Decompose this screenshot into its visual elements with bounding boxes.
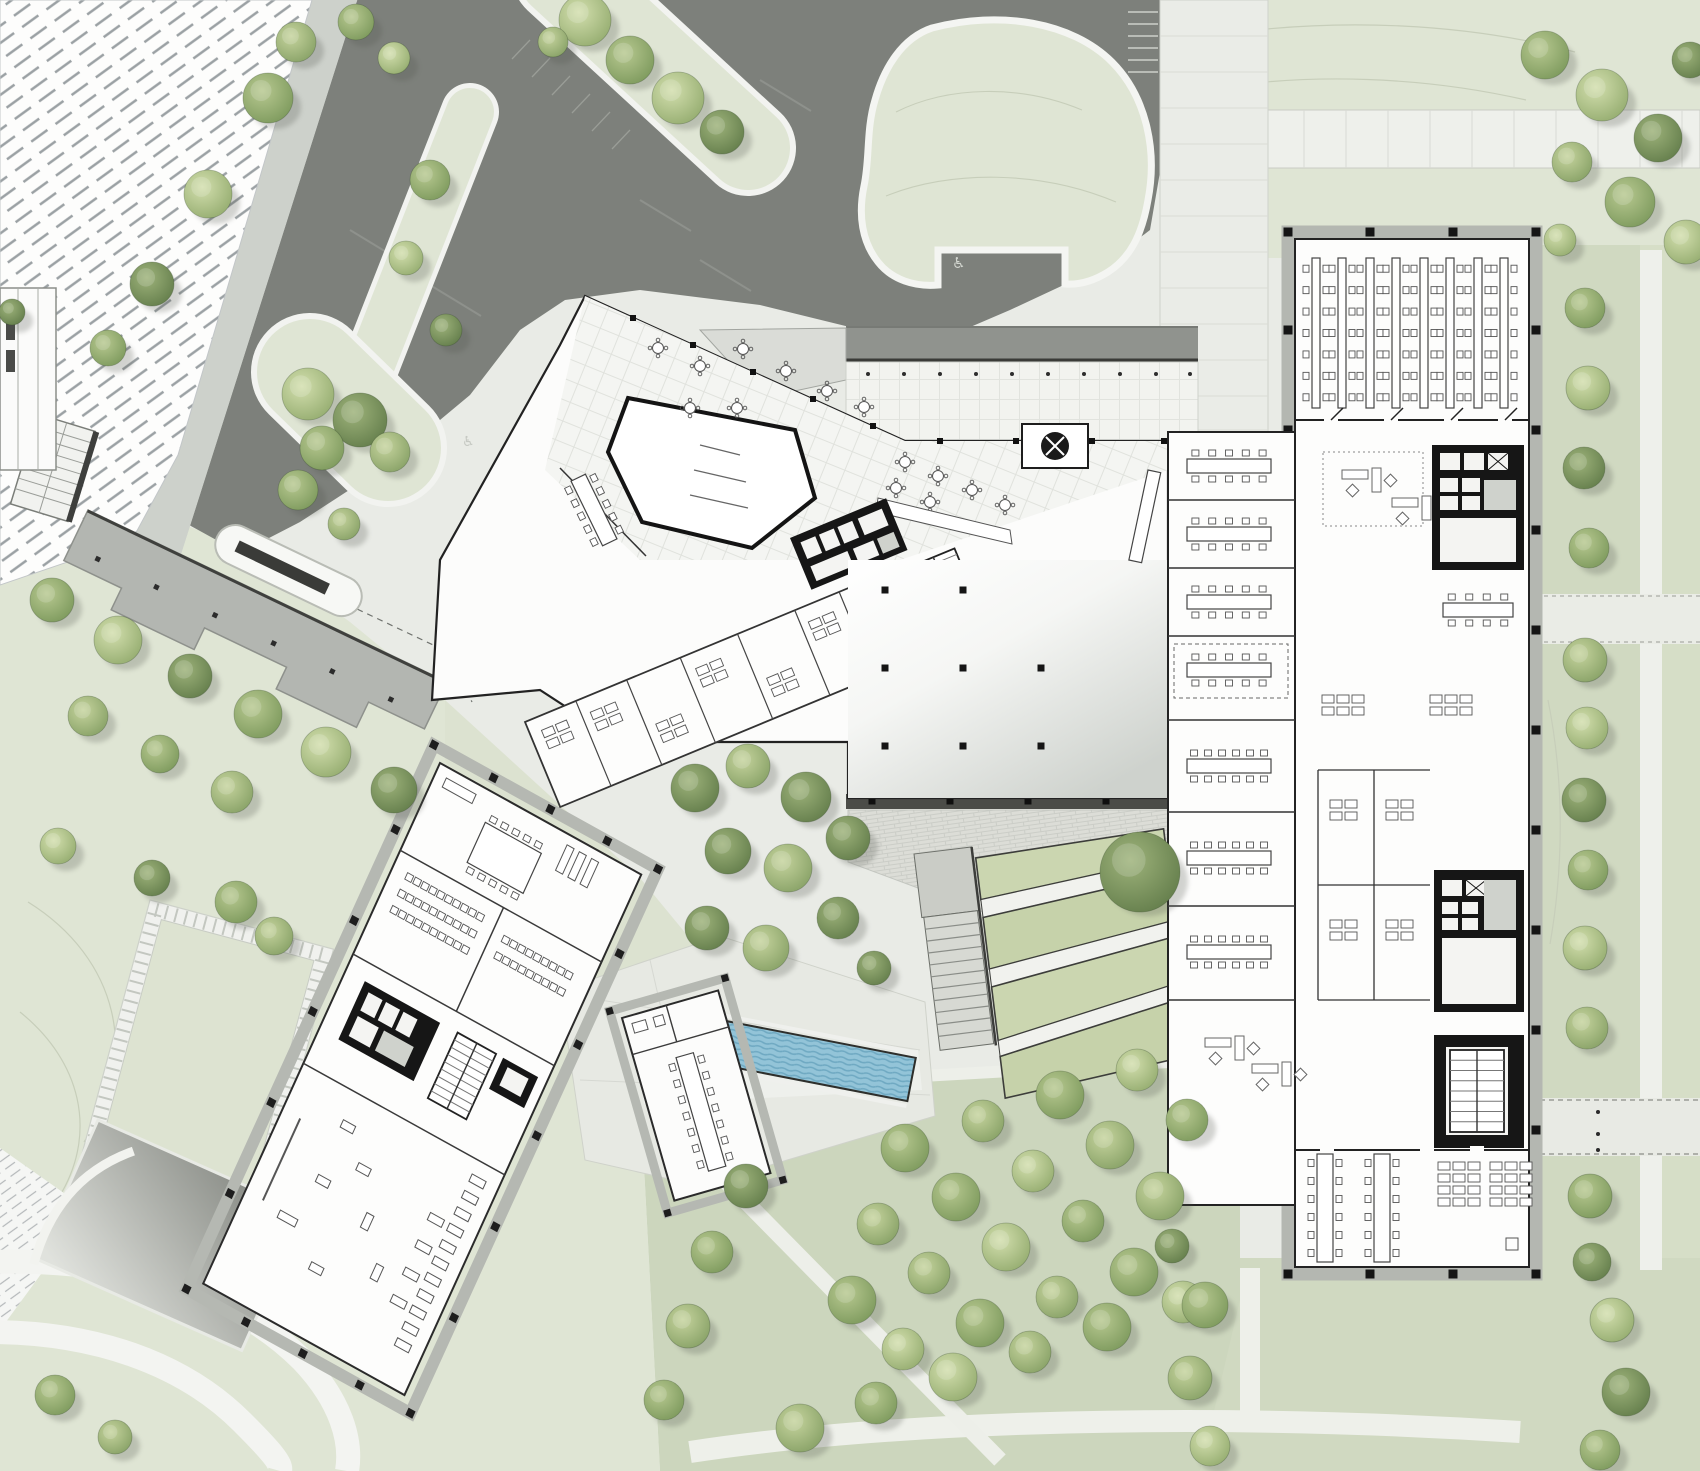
trees-5 <box>251 80 272 101</box>
trees-62 <box>888 1334 906 1352</box>
trees-51 <box>1122 1055 1140 1073</box>
trees-43 <box>692 912 710 930</box>
office-core-a <box>1464 453 1484 470</box>
building-office-bar-33 <box>1345 812 1357 820</box>
trees-66 <box>783 1411 803 1431</box>
trees-0 <box>567 1 589 23</box>
trees-33 <box>221 887 239 905</box>
trees-22 <box>37 584 55 602</box>
trees-97 <box>1641 121 1661 141</box>
trees-89 <box>1609 1375 1629 1395</box>
building-office-bar-35 <box>1330 920 1342 928</box>
office-core-a <box>1440 518 1516 562</box>
south-door-gaps <box>1420 1146 1434 1154</box>
building-office-bar-47 <box>1520 1198 1532 1206</box>
glass-columns <box>1161 438 1167 444</box>
trees-3 <box>707 116 725 134</box>
trees-10 <box>416 166 433 183</box>
trees-38 <box>733 750 751 768</box>
trees-58 <box>914 1258 932 1276</box>
office-core-a <box>1440 478 1458 492</box>
building-office-bar-41 <box>1282 1062 1291 1086</box>
west-facade-columns <box>870 423 876 429</box>
entry-colonnade <box>1154 372 1158 376</box>
trees-11 <box>394 246 408 260</box>
building-office-bar-35 <box>1345 920 1357 928</box>
office-columns <box>1284 1270 1293 1279</box>
trees-88 <box>1597 1304 1615 1322</box>
building-office-bar-26 <box>1352 695 1364 703</box>
building-office-bar-41 <box>1252 1064 1278 1073</box>
entry-colonnade <box>1188 372 1192 376</box>
glass-columns <box>937 438 943 444</box>
trees-79 <box>1575 534 1592 551</box>
building-office-bar-35 <box>1330 932 1342 940</box>
trees-63 <box>963 1306 983 1326</box>
office-core-a <box>1462 478 1480 492</box>
trees-99 <box>1613 184 1634 205</box>
office-columns <box>1532 426 1541 435</box>
building-office-bar-47 <box>1520 1162 1532 1170</box>
office-core-b <box>1442 918 1458 930</box>
trees-37 <box>678 771 698 791</box>
building-office-bar-47 <box>1505 1162 1517 1170</box>
trees-101 <box>1677 47 1692 62</box>
building-office-bar-26 <box>1337 695 1349 703</box>
trees-57 <box>835 1283 855 1303</box>
building-office-bar-27 <box>1445 707 1457 715</box>
office-core-a <box>1440 496 1458 510</box>
trees-14 <box>341 401 364 424</box>
entry-colonnade <box>1082 372 1086 376</box>
office-columns <box>1449 1270 1458 1279</box>
trees-28 <box>74 702 91 719</box>
building-office-bar-47 <box>1490 1174 1502 1182</box>
trees-65 <box>1117 1255 1137 1275</box>
office-columns <box>1449 228 1458 237</box>
office-columns <box>1532 228 1541 237</box>
building-office-bar-46 <box>1468 1162 1480 1170</box>
office-columns <box>1366 1270 1375 1279</box>
building-central-12 <box>738 344 749 355</box>
building-office-bar-47 <box>1505 1198 1517 1206</box>
office-columns <box>1532 1270 1541 1279</box>
trees-70 <box>1090 1310 1110 1330</box>
building-central-23 <box>1000 500 1011 511</box>
office-core-b <box>1462 902 1478 914</box>
building-office-bar-46 <box>1453 1162 1465 1170</box>
building-office-bar-33 <box>1345 800 1357 808</box>
building-central-19 <box>933 471 944 482</box>
building-office-bar-33 <box>1330 812 1342 820</box>
trees-77 <box>1573 372 1591 390</box>
building-office-bar-22 <box>1372 468 1381 492</box>
office-core-b <box>1442 938 1516 1004</box>
atrium-columns <box>960 587 967 594</box>
office-core-a <box>1484 480 1516 510</box>
building-office-bar-34 <box>1401 812 1413 820</box>
trees-82 <box>1569 784 1587 802</box>
building-office-bar-46 <box>1453 1174 1465 1182</box>
trees-21 <box>333 512 346 525</box>
trees-44 <box>750 931 769 950</box>
building-central-10 <box>653 343 664 354</box>
trees-7 <box>137 268 155 286</box>
stub-vents <box>6 350 15 372</box>
office-core-b <box>1462 918 1478 930</box>
west-facade-columns <box>750 369 756 375</box>
trees-80 <box>1570 644 1588 662</box>
trees-52 <box>863 1209 881 1227</box>
site-plan-canvas: ♿♿ <box>0 0 1700 1471</box>
trees-69 <box>1015 1337 1033 1355</box>
west-facade-columns <box>630 315 636 321</box>
trees-87 <box>1579 1248 1595 1264</box>
building-central-13 <box>781 366 792 377</box>
office-columns <box>1532 826 1541 835</box>
building-office-bar-34 <box>1386 812 1398 820</box>
site-plan-page: ♿♿ <box>0 0 1700 1471</box>
building-office-bar-23 <box>1392 498 1418 507</box>
entry-colonnade <box>866 372 870 376</box>
office-columns <box>1284 326 1293 335</box>
trees-20 <box>284 476 301 493</box>
accessible-parking-icon: ♿ <box>952 254 965 272</box>
trees-95 <box>1528 38 1548 58</box>
trees-75 <box>650 1386 667 1403</box>
office-core-a <box>1462 496 1480 510</box>
trees-96 <box>1584 76 1606 98</box>
trees-40 <box>712 834 731 853</box>
trees-45 <box>823 903 841 921</box>
building-office-bar-46 <box>1468 1198 1480 1206</box>
building-office-bar-47 <box>1505 1174 1517 1182</box>
trees-41 <box>771 851 791 871</box>
building-office-bar-46 <box>1438 1186 1450 1194</box>
building-office-bar-27 <box>1430 707 1442 715</box>
trees-17 <box>343 9 358 24</box>
glass-columns <box>1013 438 1019 444</box>
trees-92 <box>1175 1362 1193 1380</box>
trees-68 <box>936 1360 956 1380</box>
south-door-gaps <box>1470 1146 1484 1154</box>
entry-colonnade <box>974 372 978 376</box>
trees-85 <box>1572 1013 1590 1031</box>
office-columns <box>1532 926 1541 935</box>
trees-6 <box>191 177 211 197</box>
dropoff-lawn-blob <box>861 20 1151 285</box>
garden-stair-0 <box>914 847 979 918</box>
trees-74 <box>673 1310 691 1328</box>
trees-60 <box>1068 1206 1086 1224</box>
trees-19 <box>0 299 25 325</box>
west-facade-columns <box>690 342 696 348</box>
trees-34 <box>261 922 277 938</box>
trees-2 <box>660 79 682 101</box>
trees-86 <box>1575 1180 1593 1198</box>
trees-78 <box>1569 453 1587 471</box>
atrium-columns <box>882 665 889 672</box>
crossing-bollards <box>1596 1132 1600 1136</box>
building-office-bar-22 <box>1342 470 1368 479</box>
trees-64 <box>1042 1282 1060 1300</box>
trees-13 <box>290 375 312 397</box>
office-columns <box>1532 526 1541 535</box>
trees-53 <box>939 1180 959 1200</box>
crossing-bollards <box>1596 1110 1600 1114</box>
trees-36 <box>103 1425 117 1439</box>
office-columns <box>1532 1026 1541 1035</box>
office-columns <box>1532 326 1541 335</box>
trees-15 <box>307 432 325 450</box>
building-office-bar-26 <box>1322 707 1334 715</box>
trees-42 <box>833 822 851 840</box>
trees-83 <box>1574 856 1591 873</box>
trees-72 <box>731 1170 749 1188</box>
building-office-bar-34 <box>1386 800 1398 808</box>
trees-26 <box>309 734 330 755</box>
office-columns <box>1284 228 1293 237</box>
trees-47 <box>1112 843 1146 877</box>
path-south-stub <box>1240 1268 1260 1418</box>
building-office-bar-23 <box>1422 496 1431 520</box>
trees-16 <box>376 438 393 455</box>
atrium-columns <box>882 743 889 750</box>
atrium-columns <box>1038 665 1045 672</box>
trees-18 <box>383 46 396 59</box>
trees-23 <box>101 623 121 643</box>
trees-59 <box>989 1230 1009 1250</box>
trees-94 <box>1160 1234 1174 1248</box>
trees-56 <box>1172 1105 1190 1123</box>
office-core-a <box>1440 453 1460 470</box>
building-office-bar-27 <box>1430 695 1442 703</box>
trees-30 <box>217 777 235 795</box>
trees-19 <box>3 303 14 314</box>
trees-61 <box>1143 1179 1163 1199</box>
trees-39 <box>789 779 810 800</box>
trees-73 <box>697 1237 715 1255</box>
trees-98 <box>1558 148 1575 165</box>
office-core-b <box>1484 880 1516 930</box>
trees-100 <box>1671 226 1689 244</box>
accessible-parking-icon-2: ♿ <box>462 434 475 450</box>
trees-29 <box>147 740 163 756</box>
building-central-16 <box>732 403 743 414</box>
building-office-bar-47 <box>1520 1174 1532 1182</box>
trees-35 <box>41 1381 58 1398</box>
trees-12 <box>435 318 448 331</box>
crossing-east <box>1531 1098 1700 1156</box>
trees-25 <box>241 697 261 717</box>
building-office-bar-47 <box>1490 1162 1502 1170</box>
entry-canopy <box>846 326 1198 360</box>
building-office-bar-36 <box>1386 932 1398 940</box>
atrium-columns <box>1038 743 1045 750</box>
trees-91 <box>1189 1288 1208 1307</box>
crossing-bollards <box>1596 1148 1600 1152</box>
building-office-bar-47 <box>1490 1186 1502 1194</box>
building-office-bar-26 <box>1352 707 1364 715</box>
building-office-bar-46 <box>1453 1198 1465 1206</box>
trees-46 <box>862 956 876 970</box>
building-office-bar-47 <box>1505 1186 1517 1194</box>
trees-93 <box>1196 1432 1213 1449</box>
office-core-b <box>1442 902 1458 914</box>
building-central-11 <box>695 361 706 372</box>
trees-32 <box>139 865 154 880</box>
building-central-22 <box>891 483 902 494</box>
trees-27 <box>378 773 397 792</box>
entry-colonnade <box>902 372 906 376</box>
building-office-bar-27 <box>1445 695 1457 703</box>
trees-84 <box>1570 932 1588 950</box>
building-office-bar-40 <box>1205 1038 1231 1047</box>
trees-48 <box>888 1131 908 1151</box>
trees-1 <box>613 43 633 63</box>
trees-50 <box>1043 1078 1063 1098</box>
office-core-b <box>1442 880 1462 896</box>
office-columns <box>1532 1126 1541 1135</box>
building-office-bar-46 <box>1438 1162 1450 1170</box>
building-office-bar-46 <box>1468 1174 1480 1182</box>
building-office-bar-27 <box>1460 707 1472 715</box>
building-office-bar-46 <box>1468 1186 1480 1194</box>
west-facade-columns <box>810 396 816 402</box>
building-central-14 <box>822 386 833 397</box>
building-office-bar-46 <box>1453 1186 1465 1194</box>
trees-90 <box>1586 1436 1603 1453</box>
entry-colonnade <box>938 372 942 376</box>
building-office-bar-26 <box>1322 695 1334 703</box>
trees-102 <box>1549 228 1562 241</box>
site-plan-figure: ♿♿ <box>0 0 1700 1471</box>
building-office-bar-27 <box>1460 695 1472 703</box>
south-door-gaps <box>1320 1146 1334 1154</box>
building-office-bar-40 <box>1235 1036 1244 1060</box>
trees-4 <box>543 31 556 44</box>
building-central <box>432 296 1294 807</box>
entry-colonnade <box>1118 372 1122 376</box>
office-columns <box>1532 626 1541 635</box>
trees-31 <box>45 833 60 848</box>
pavilion-fixtures <box>653 1015 665 1027</box>
door-walk-east <box>1536 594 1700 644</box>
trees-81 <box>1572 713 1590 731</box>
office-columns <box>1532 726 1541 735</box>
glass-columns <box>1089 438 1095 444</box>
entry-colonnade <box>1046 372 1050 376</box>
building-office-bar-46 <box>1438 1198 1450 1206</box>
atrium-columns <box>960 743 967 750</box>
atrium-columns <box>882 587 889 594</box>
building-office-bar-36 <box>1401 920 1413 928</box>
trees-49 <box>968 1106 986 1124</box>
trees-8 <box>95 335 110 350</box>
trees-76 <box>1571 294 1588 311</box>
building-central-20 <box>967 485 978 496</box>
building-central-21 <box>925 497 936 508</box>
building-office-bar-34 <box>1401 800 1413 808</box>
building-central-17 <box>685 403 696 414</box>
trees-55 <box>1093 1128 1113 1148</box>
building-central-18 <box>900 457 911 468</box>
trees-67 <box>861 1388 879 1406</box>
trees-9 <box>282 28 299 45</box>
building-office-bar-47 <box>1490 1198 1502 1206</box>
building-office-bar-33 <box>1330 800 1342 808</box>
entry-colonnade <box>1010 372 1014 376</box>
atrium-void <box>848 560 1168 798</box>
building-office-bar-35 <box>1345 932 1357 940</box>
building-central-15 <box>859 402 870 413</box>
office-columns <box>1366 228 1375 237</box>
building-office-bar-36 <box>1386 920 1398 928</box>
building-office-bar-36 <box>1401 932 1413 940</box>
building-office-bar-47 <box>1520 1186 1532 1194</box>
trees-24 <box>175 660 193 678</box>
atrium-columns <box>960 665 967 672</box>
trees-54 <box>1018 1156 1036 1174</box>
building-office-bar-46 <box>1438 1174 1450 1182</box>
building-office-bar-26 <box>1337 707 1349 715</box>
